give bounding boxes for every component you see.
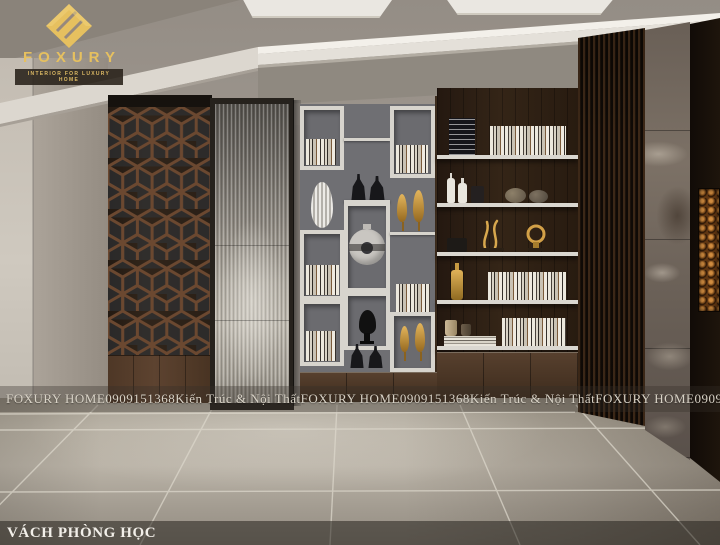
wall-shelf xyxy=(437,252,578,256)
watermark-item: 0909151368 xyxy=(400,391,470,407)
shelf-board xyxy=(390,232,435,235)
shelf-box xyxy=(390,106,435,178)
watermark-item: FOXURY HOME xyxy=(595,391,694,407)
shelf-box xyxy=(344,292,390,350)
books xyxy=(490,126,566,155)
gold-bottle-decor xyxy=(451,270,463,300)
wall-shelf xyxy=(437,300,578,304)
brand-name: FOXURY xyxy=(8,49,130,66)
watermark-item: FOXURY HOME xyxy=(301,391,400,407)
gold-figurine-sculpture xyxy=(478,218,508,252)
brand-tagline: INTERIOR FOR LUXURY HOME xyxy=(15,69,123,85)
gold-leaf-decor xyxy=(415,323,425,352)
decor-bottle xyxy=(351,174,366,200)
reeded-glass xyxy=(215,104,289,403)
bust-sculpture xyxy=(359,310,376,334)
honeycomb-art-panel xyxy=(698,188,720,312)
gourd-decor xyxy=(529,190,548,203)
panel-header-rail xyxy=(108,95,212,107)
gold-leaf-decor xyxy=(400,326,409,352)
watermark-item: 0909151368 xyxy=(695,391,720,407)
shelf-board xyxy=(344,138,390,141)
caption-bar: VÁCH PHÒNG HỌC xyxy=(0,521,720,545)
wall-shelf xyxy=(437,155,578,159)
watermark-item: FOXURY HOME xyxy=(6,391,105,407)
wall-shelf xyxy=(437,346,578,350)
bust-base xyxy=(360,341,374,344)
books xyxy=(396,145,428,173)
ceiling-coffer-panel xyxy=(232,0,392,18)
watermark-item: 0909151368 xyxy=(105,391,175,407)
watermark-band: FOXURY HOME0909151368Kiến Trúc & Nội Thấ… xyxy=(0,386,720,412)
shelf-box xyxy=(390,312,435,372)
books xyxy=(306,139,336,165)
books xyxy=(488,272,566,300)
shelf-box xyxy=(300,300,344,366)
stacked-white-books xyxy=(444,336,496,346)
gold-leaf-decor xyxy=(413,190,424,222)
wall-corner-column xyxy=(0,58,33,426)
wall-shelf xyxy=(437,203,578,207)
shelf-box xyxy=(300,230,344,300)
cube-lattice-pattern xyxy=(108,107,212,355)
books xyxy=(306,331,336,361)
books xyxy=(396,284,430,312)
dark-box xyxy=(447,238,467,252)
glass-seam xyxy=(215,320,289,321)
left-wall xyxy=(34,58,108,426)
books xyxy=(502,318,566,346)
shelf-box xyxy=(344,202,390,292)
ring-vase xyxy=(349,229,385,265)
interior-render-scene: FOXURY HOME0909151368Kiến Trúc & Nội Thấ… xyxy=(0,0,720,545)
white-bottle-vase xyxy=(447,178,455,203)
gourd-decor xyxy=(505,188,526,203)
black-book-stack xyxy=(449,118,475,155)
caption-title: VÁCH PHÒNG HỌC xyxy=(7,525,156,542)
glass-seam xyxy=(215,245,289,246)
foxury-logo-icon xyxy=(45,4,93,48)
wood-slat-panel xyxy=(578,26,645,428)
fluted-glass-sliding-door xyxy=(210,98,294,410)
display-shelf-unit xyxy=(300,104,435,372)
cup-decor xyxy=(461,324,471,336)
dark-jar xyxy=(471,186,484,203)
cup-decor xyxy=(445,320,457,336)
books xyxy=(306,265,339,295)
watermark-item: Kiến Trúc & Nội Thất xyxy=(470,391,595,407)
watermark-item: Kiến Trúc & Nội Thất xyxy=(175,391,300,407)
gold-leaf-decor xyxy=(397,194,407,222)
gold-ring-sculpture xyxy=(522,222,550,252)
lattice-wood-panel xyxy=(108,95,212,403)
decor-bottle xyxy=(369,176,385,200)
white-bottle-vase xyxy=(458,183,467,203)
ribbed-vase xyxy=(311,182,333,228)
shelf-box xyxy=(300,106,344,170)
brand-logo: FOXURY INTERIOR FOR LUXURY HOME xyxy=(8,4,130,85)
ceiling-coffer-panel xyxy=(440,0,618,15)
